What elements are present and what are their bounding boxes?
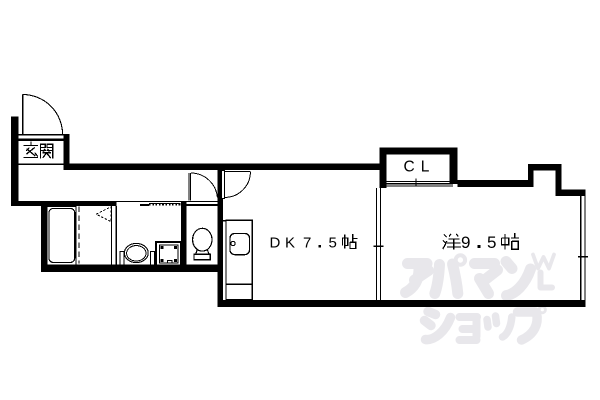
svg-text:5: 5: [487, 233, 496, 252]
svg-text:L: L: [421, 158, 430, 175]
svg-text:7: 7: [303, 235, 311, 252]
svg-text:9: 9: [461, 233, 470, 252]
svg-text:C: C: [404, 158, 415, 175]
svg-text:D: D: [270, 235, 281, 252]
svg-text:5: 5: [329, 235, 337, 252]
svg-text:K: K: [285, 235, 295, 252]
